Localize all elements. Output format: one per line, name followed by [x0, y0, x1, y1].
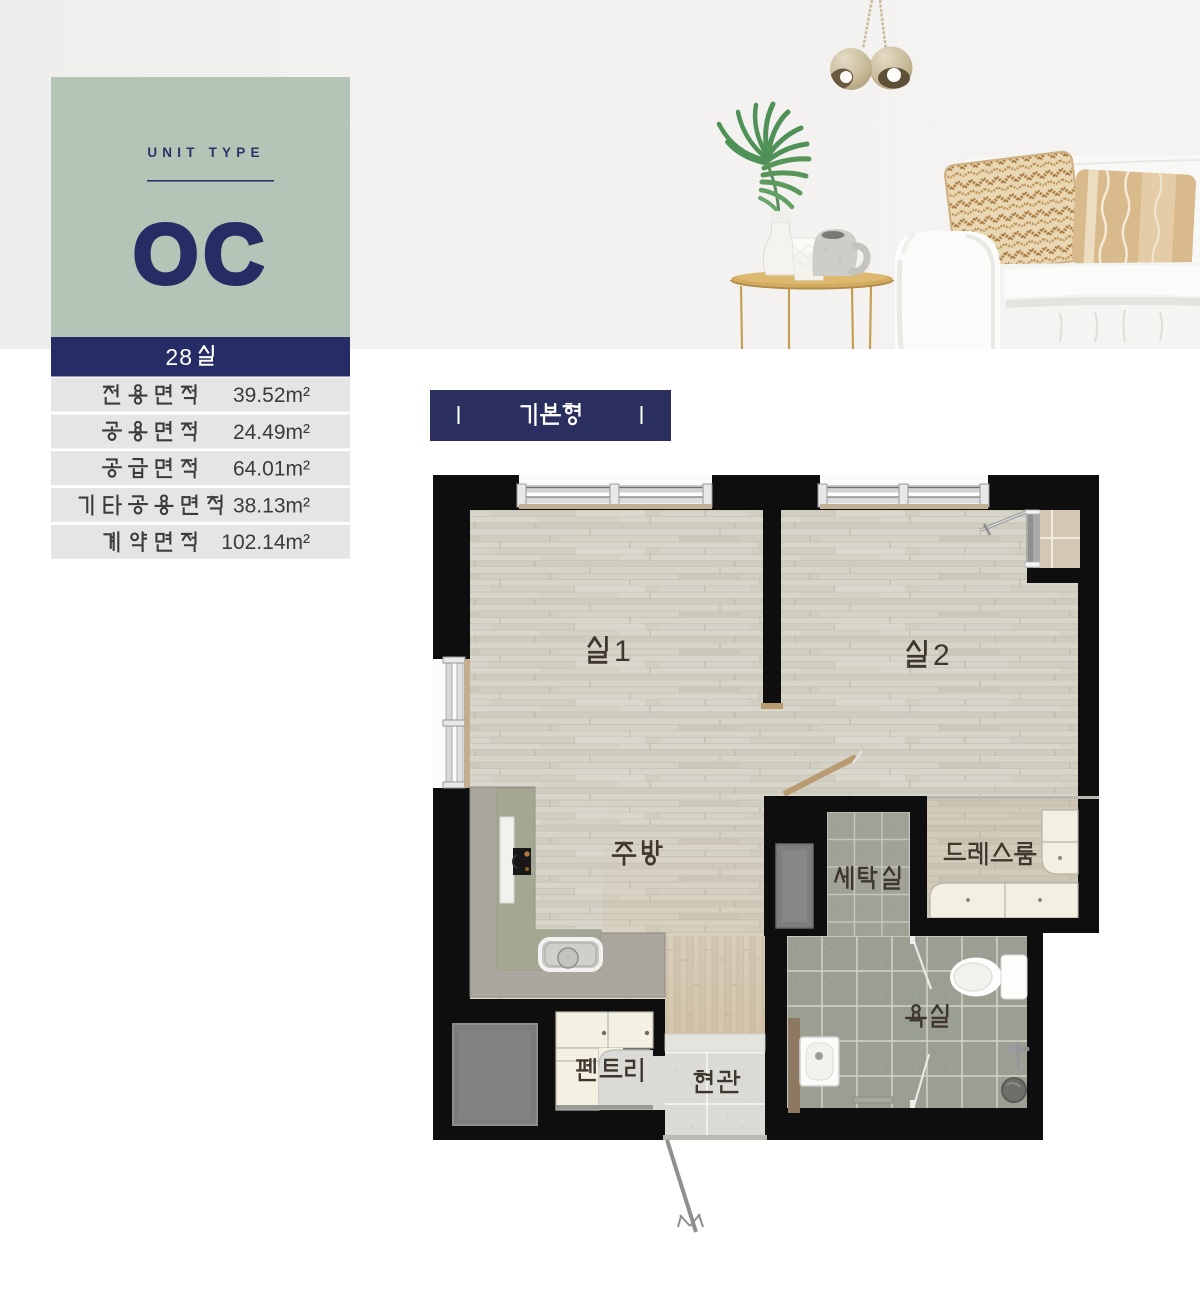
svg-text:39.52m²: 39.52m² [233, 384, 310, 407]
svg-text:38.13m²: 38.13m² [233, 494, 310, 517]
svg-text:102.14m²: 102.14m² [221, 531, 310, 554]
svg-text:OC: OC [133, 207, 269, 301]
svg-text:64.01m²: 64.01m² [233, 458, 310, 481]
svg-text:1: 1 [614, 635, 631, 668]
svg-text:2: 2 [933, 639, 950, 672]
svg-text:24.49m²: 24.49m² [233, 421, 310, 444]
svg-text:28: 28 [165, 344, 193, 370]
svg-text:UNIT TYPE: UNIT TYPE [147, 145, 264, 160]
